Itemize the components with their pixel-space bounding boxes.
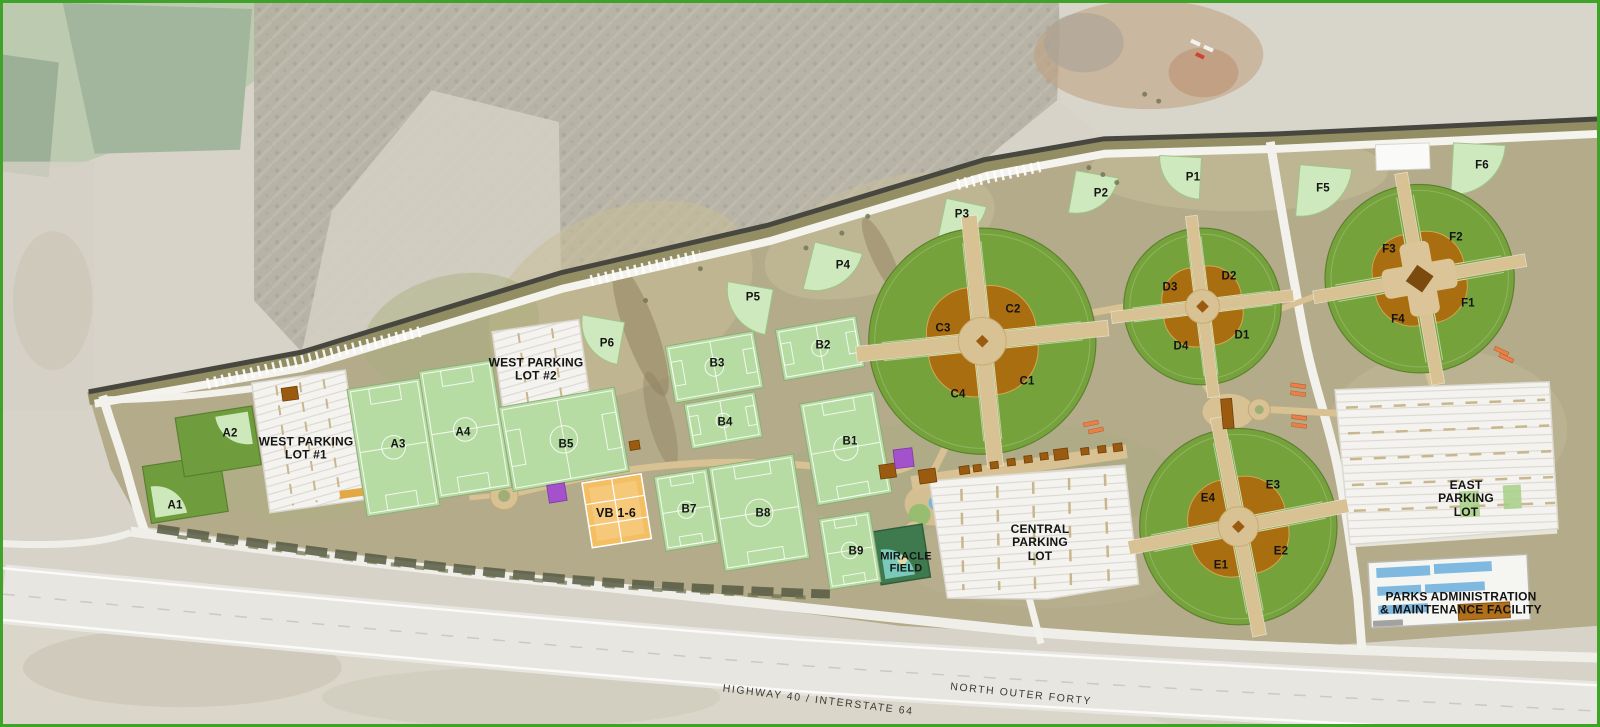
pavilion-building	[918, 468, 937, 484]
miracle-field-label-line1: MIRACLE	[880, 551, 932, 563]
field-label-b3: B3	[709, 358, 724, 371]
field-label-vb: VB 1-6	[596, 506, 636, 520]
field-label-b9: B9	[848, 546, 863, 559]
field-label-p5: P5	[746, 292, 760, 305]
field-label-a3: A3	[390, 439, 405, 452]
parking-label-central-line1: CENTRAL	[1011, 523, 1070, 536]
parking-label-east-line1: EAST	[1438, 479, 1494, 492]
field-label-f1: F1	[1461, 298, 1475, 311]
pavilion-building	[281, 386, 299, 401]
admin-facility-label-line2: & MAINTENANCE FACILITY	[1380, 604, 1542, 617]
field-label-b7: B7	[681, 504, 696, 517]
parking-label-west1-line2: LOT #1	[259, 449, 354, 462]
purple-court	[547, 483, 568, 503]
white-pad	[1375, 143, 1430, 171]
pavilion-building	[1221, 398, 1235, 429]
parking-label-east-line3: LOT	[1438, 506, 1494, 519]
parking-label-west1-line1: WEST PARKING	[259, 436, 354, 449]
purple-court	[893, 448, 914, 469]
field-label-p3: P3	[955, 209, 969, 222]
parking-label-central-line3: LOT	[1011, 550, 1070, 563]
field-label-b8: B8	[755, 508, 770, 521]
field-label-e2: E2	[1274, 546, 1288, 559]
ball-field-a2	[175, 406, 261, 477]
pavilion-building	[1081, 447, 1090, 455]
field-label-b5: B5	[558, 439, 573, 452]
admin-facility-label-line1: PARKS ADMINISTRATION	[1380, 591, 1542, 604]
pavilion-building	[1097, 445, 1106, 453]
parking-label-west1: WEST PARKING LOT #1	[259, 436, 354, 463]
pavilion-building	[1024, 455, 1033, 463]
field-label-a1: A1	[167, 500, 182, 513]
field-label-b2: B2	[815, 340, 830, 353]
pavilion-building	[990, 461, 999, 469]
pavilion-building	[1053, 448, 1068, 461]
miracle-field-label: MIRACLE FIELD	[880, 551, 932, 576]
field-label-p6: P6	[600, 338, 614, 351]
pavilion-building	[1040, 452, 1049, 460]
tree	[1086, 165, 1091, 170]
tree	[865, 214, 870, 219]
tree	[1142, 92, 1147, 97]
field-label-c1: C1	[1019, 376, 1034, 389]
field-label-f3: F3	[1382, 244, 1396, 257]
field-label-e3: E3	[1266, 480, 1280, 493]
tree	[698, 266, 703, 271]
field-label-c3: C3	[935, 323, 950, 336]
parking-label-west2-line2: LOT #2	[489, 370, 584, 383]
field-label-p4: P4	[836, 260, 850, 273]
site-plan-map: A1 A2 A3 A4 B1 B2 B3 B4 B5 B7 B8 B9 C1 C…	[0, 0, 1600, 727]
field-label-d2: D2	[1221, 271, 1236, 284]
field-label-b4: B4	[717, 417, 732, 430]
tree	[1156, 99, 1161, 104]
tree	[839, 231, 844, 236]
field-label-f4: F4	[1391, 314, 1405, 327]
parking-label-west2-line1: WEST PARKING	[489, 357, 584, 370]
field-label-a2: A2	[222, 428, 237, 441]
tree	[643, 298, 648, 303]
pavilion-building	[879, 463, 897, 479]
tree	[1100, 172, 1105, 177]
field-label-b1: B1	[842, 436, 857, 449]
field-label-d4: D4	[1173, 341, 1188, 354]
site-plan-canvas	[3, 3, 1597, 724]
field-label-p1: P1	[1186, 172, 1200, 185]
field-label-d1: D1	[1234, 330, 1249, 343]
pavilion-building	[629, 440, 640, 450]
pavilion-building	[959, 465, 970, 474]
pavilion-building	[1113, 443, 1123, 452]
field-label-e4: E4	[1201, 493, 1215, 506]
tree	[1114, 180, 1119, 185]
field-label-f5: F5	[1316, 183, 1330, 196]
field-label-f2: F2	[1449, 232, 1463, 245]
field-label-f6: F6	[1475, 160, 1489, 173]
field-label-c4: C4	[950, 389, 965, 402]
miracle-field-label-line2: FIELD	[880, 563, 932, 575]
parking-label-west2: WEST PARKING LOT #2	[489, 357, 584, 384]
pavilion-building	[1007, 458, 1016, 466]
parking-label-east-line2: PARKING	[1438, 492, 1494, 505]
field-label-e1: E1	[1214, 560, 1228, 573]
field-label-p2: P2	[1094, 188, 1108, 201]
field-label-c2: C2	[1005, 304, 1020, 317]
pavilion-building	[973, 464, 982, 472]
east-parking-lot	[1335, 382, 1558, 545]
parking-label-central-line2: PARKING	[1011, 536, 1070, 549]
parking-label-east: EAST PARKING LOT	[1438, 479, 1494, 519]
field-label-d3: D3	[1162, 282, 1177, 295]
admin-facility-label: PARKS ADMINISTRATION & MAINTENANCE FACIL…	[1380, 591, 1542, 618]
tree	[803, 245, 808, 250]
parking-label-central: CENTRAL PARKING LOT	[1011, 523, 1070, 563]
field-label-a4: A4	[455, 427, 470, 440]
